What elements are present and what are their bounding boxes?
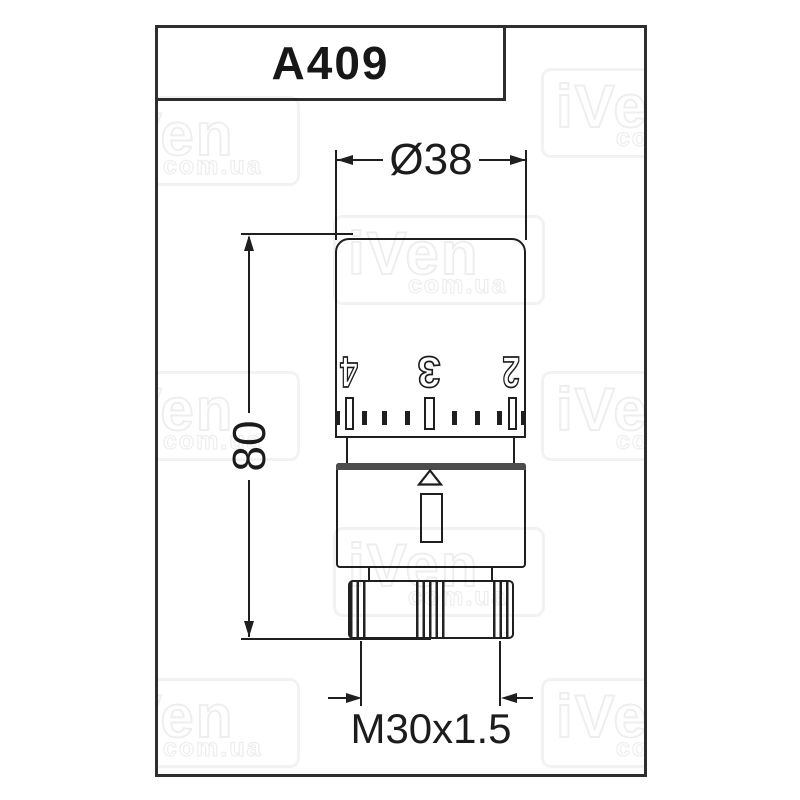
dim-thread-arrow-left (346, 693, 362, 703)
dim-thread-tail-left (328, 697, 348, 699)
scale-tick-minor (452, 411, 457, 425)
title-box: A409 (155, 25, 506, 101)
scale-number-2: 2 (502, 349, 520, 393)
technical-drawing-canvas: iVen com.ua iVen com.ua iVen com.ua iVen… (0, 0, 800, 800)
watermark-brand: iVen (556, 73, 647, 140)
watermark-tile: iVen com.ua (541, 371, 647, 461)
indicator-window (420, 493, 443, 543)
scale-tick-major (508, 397, 517, 430)
watermark-tile: iVen com.ua (541, 678, 647, 768)
watermark-tile: iVen com.ua (155, 96, 300, 186)
scale-tick-minor (497, 411, 502, 425)
watermark-brand: iVen (556, 683, 647, 750)
watermark-brand: iVen (556, 376, 647, 443)
dim-diameter-arrow-left (337, 155, 353, 165)
scale-tick-minor (336, 411, 340, 425)
dim-height-line-lower (248, 480, 250, 637)
watermark-domain: com.ua (163, 734, 285, 763)
dim-thread-label: M30x1.5 (350, 705, 511, 753)
watermark-domain: com.ua (163, 152, 285, 181)
valve-neck-line-right (513, 438, 515, 465)
watermark-domain: com.ua (616, 734, 647, 763)
watermark-domain: com.ua (616, 427, 647, 456)
nut-knurl-right (493, 582, 512, 637)
dim-height-line-upper (248, 237, 250, 413)
valve-neck-line-left (346, 438, 348, 465)
dim-height-arrow-top (244, 235, 254, 251)
dim-height-arrow-bottom (244, 621, 254, 637)
scale-tick-major (345, 397, 354, 430)
dim-height-extension-top (241, 233, 353, 235)
dim-diameter-label: Ø38 (389, 135, 472, 185)
watermark-brand: iVen (155, 683, 234, 750)
product-code: A409 (272, 36, 390, 90)
dim-thread-arrow-right (501, 693, 517, 703)
scale-tick-minor (521, 411, 525, 425)
scale-number-4: 4 (340, 349, 358, 393)
dim-diameter-arrow-right (510, 155, 526, 165)
watermark-domain: com.ua (616, 124, 647, 153)
watermark-tile: iVen com.ua (541, 68, 647, 158)
scale-tick-minor (382, 411, 387, 425)
nut-knurl-center (416, 582, 445, 637)
scale-tick-major (424, 397, 435, 430)
nut-knurl-left (350, 582, 368, 637)
scale-tick-minor (405, 411, 410, 425)
indicator-triangle-icon (417, 469, 443, 486)
watermark-brand: iVen (155, 101, 234, 168)
scale-tick-minor (362, 411, 367, 425)
scale-number-3: 3 (417, 349, 440, 393)
watermark-tile: iVen com.ua (155, 678, 300, 768)
scale-tick-minor (475, 411, 480, 425)
dim-height-label: 80 (222, 414, 276, 477)
